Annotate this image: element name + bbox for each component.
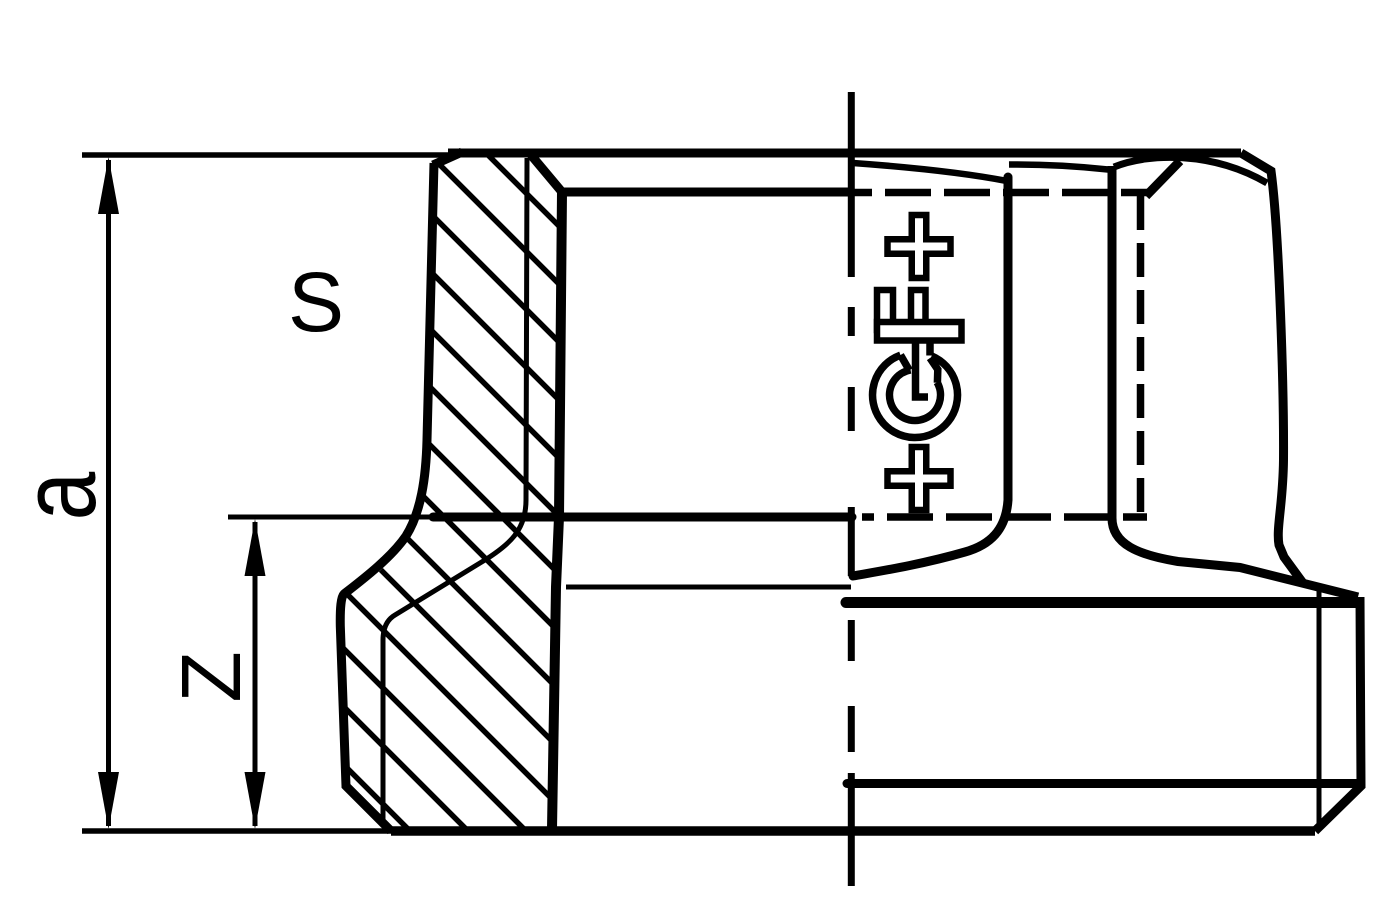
svg-text:Z: Z <box>164 651 258 702</box>
svg-text:S: S <box>288 255 344 349</box>
svg-text:a: a <box>0 471 118 520</box>
